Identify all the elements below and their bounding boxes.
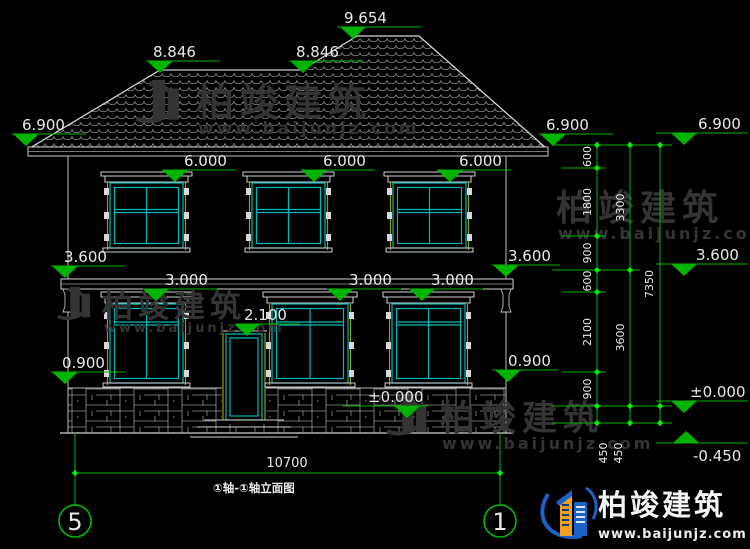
marker-break-left: 8.846 [146,43,220,73]
dim-1800: 1800 [581,188,594,216]
marker-win2-3-value: 6.000 [459,152,502,170]
marker-sill-left-value: 0.900 [62,354,105,372]
marker-door-top-value: 2.100 [244,306,287,324]
dim-900-a: 900 [581,243,594,264]
marker-win2-1-value: 6.000 [184,152,227,170]
marker-ground-far-right: ±0.000 [656,383,748,413]
dim-10700: 10700 [266,456,307,471]
marker-floor-far-value: 3.600 [696,246,739,264]
marker-ridge-value: 9.654 [344,9,387,27]
watermark-brand-text: 柏竣建筑 [440,398,604,439]
marker-ground-value: ±0.000 [368,388,424,406]
dim-7350: 7350 [643,270,656,298]
dim-3600: 3600 [614,324,627,352]
watermark-site-text: www.baijunjz.com [558,224,750,243]
marker-floor-far-right: 3.600 [656,246,748,276]
watermark-site-text: www.baijunjz.com [198,119,420,139]
marker-win2-2-value: 6.000 [323,152,366,170]
marker-win1-2-value: 3.000 [349,271,392,289]
watermark-brand-text: 柏竣建筑 [102,289,246,325]
axis-5-label: 5 [67,508,82,536]
axis-1-label: 1 [492,508,507,536]
dim-3300: 3300 [614,194,627,222]
marker-floor-right-value: 3.600 [508,247,551,265]
drawing-title: ①轴-①轴立面图 [213,481,295,495]
marker-break-left-value: 8.846 [153,43,196,61]
dim-600-b: 600 [581,271,594,292]
marker-eave-far-value: 6.900 [698,115,741,133]
logo-site-text: www.baijunjz.com [598,527,747,542]
marker-win1-3-value: 3.000 [431,271,474,289]
dim-2100: 2100 [581,318,594,346]
entry-door [221,331,267,424]
marker-footing: -0.450 [656,431,748,465]
marker-eave-right: 6.900 [539,116,613,146]
drawing-canvas: 柏竣建筑 www.baijunjz.com 柏竣建筑 www.baijunjz.… [0,0,750,549]
dim-450-a: 450 [597,443,610,464]
brand-logo: 柏竣建筑 www.baijunjz.com [542,488,746,542]
marker-ridge: 9.654 [337,9,421,39]
marker-eave-right-value: 6.900 [546,116,589,134]
dim-600-a: 600 [581,146,594,167]
dim-900-b: 900 [581,379,594,400]
cad-elevation-drawing: 柏竣建筑 www.baijunjz.com 柏竣建筑 www.baijunjz.… [0,0,750,549]
marker-sill-right-value: 0.900 [508,352,551,370]
dim-450-b: 450 [612,443,625,464]
marker-floor-left-value: 3.600 [64,248,107,266]
marker-break-right-value: 8.846 [296,43,339,61]
marker-footing-value: -0.450 [693,447,741,465]
marker-ground-far-value: ±0.000 [690,383,746,401]
marker-eave-left-value: 6.900 [22,116,65,134]
logo-brand-text: 柏竣建筑 [598,488,726,522]
marker-eave-far-right: 6.900 [656,115,748,145]
marker-win1-1-value: 3.000 [165,271,208,289]
